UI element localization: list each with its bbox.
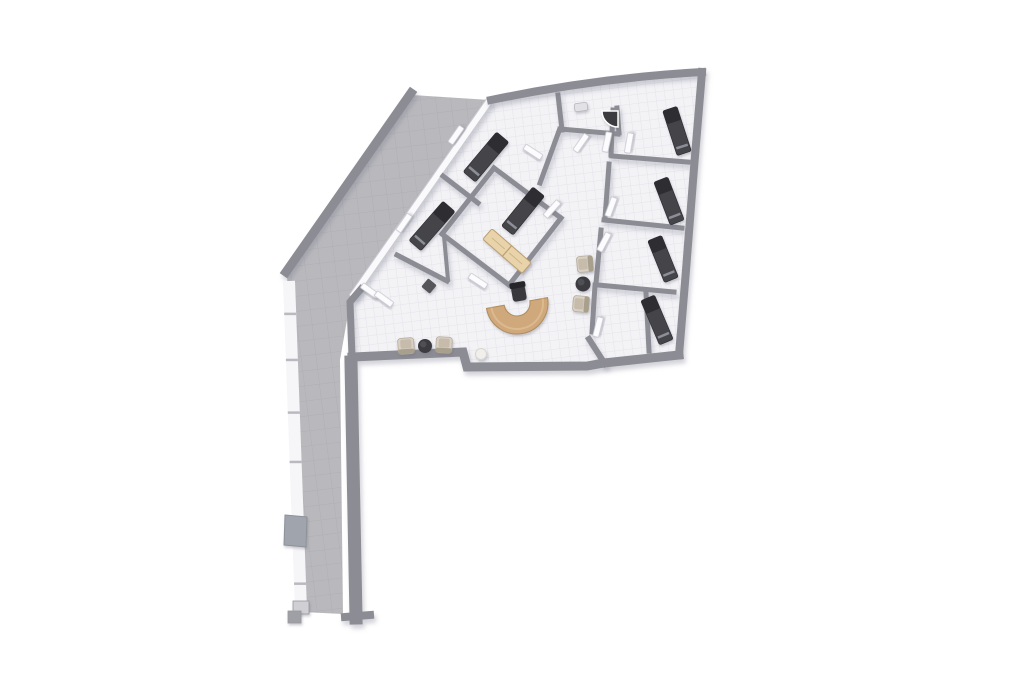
chimney-block — [284, 515, 307, 547]
waiting-armchair — [576, 255, 593, 272]
armchair-seat — [438, 338, 449, 348]
coffee-table-sheen — [420, 341, 426, 347]
wall-stub — [288, 611, 301, 623]
waiting-armchair — [572, 295, 589, 312]
outer-wall — [345, 615, 370, 617]
armchair-back — [436, 348, 452, 354]
armchair-seat — [574, 298, 584, 310]
coffee-table-sheen — [578, 279, 585, 286]
wash-basin — [574, 102, 588, 112]
floor-plan-canvas — [0, 0, 1024, 683]
outer-wall — [351, 362, 356, 618]
floor-plan-3d-render — [0, 0, 1024, 683]
waiting-armchair — [397, 337, 414, 354]
coffee-table — [418, 339, 432, 353]
armchair-seat — [578, 258, 588, 270]
inner-wall — [592, 285, 595, 332]
decor-sphere — [476, 349, 487, 360]
waiting-armchair — [436, 337, 453, 354]
coffee-table — [576, 277, 591, 292]
armchair-seat — [400, 339, 412, 349]
